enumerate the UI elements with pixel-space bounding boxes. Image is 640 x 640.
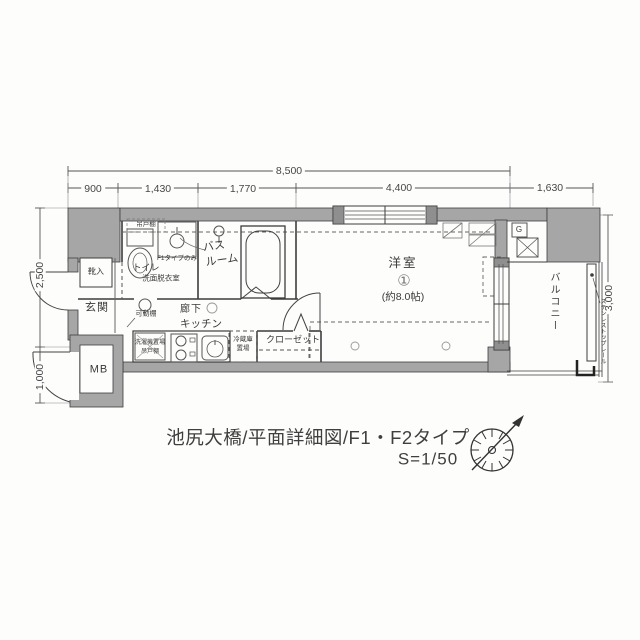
balcony-rail	[587, 264, 596, 361]
washbasin	[158, 222, 196, 257]
floor-plan-drawing	[0, 0, 640, 640]
dim-right-side: 3,000	[604, 282, 615, 314]
note-stainless-rail: ステンレストップレール	[599, 298, 605, 364]
dim-total-width: 8,500	[273, 166, 305, 177]
room-label-living-size: (約8.0帖)	[382, 292, 425, 303]
room-label-balcony: バルコニー	[548, 272, 558, 332]
room-label-hallway: 廊下	[180, 305, 202, 315]
floor-plan-sheet: 8,500 900 1,430 1,770 4,400 1,630 2,500 …	[0, 0, 640, 640]
washer-pan	[135, 333, 165, 360]
dim-seg3: 1,770	[227, 184, 259, 195]
drawing-title: 池尻大橋/平面詳細図/F1・F2タイプ	[166, 429, 469, 448]
room-mark-living: ①	[397, 274, 410, 289]
room-label-closet: クローゼット	[266, 336, 320, 345]
closet-folding-door	[294, 314, 308, 331]
dim-left-upper: 2,500	[35, 259, 46, 291]
compass-icon	[471, 415, 524, 471]
room-label-washroom: 洗面脱衣室	[142, 274, 180, 282]
note-washer: 洗濯機置場	[135, 340, 165, 346]
drawing-scale: S=1/50	[398, 451, 458, 468]
mb-door-gap	[66, 352, 79, 400]
note-hanging-shelf: 吊戸棚	[136, 222, 156, 229]
dim-seg1: 900	[81, 184, 105, 195]
utility-boxes	[443, 223, 496, 246]
note-movable-shelf: 可動棚	[136, 311, 157, 318]
note-fridge-1: 冷蔵庫	[233, 337, 253, 344]
room-label-living: 洋室	[388, 257, 417, 270]
bathtub	[241, 226, 285, 298]
dim-seg2: 1,430	[142, 184, 174, 195]
room-label-entrance: 玄関	[85, 303, 109, 314]
note-f1-only: F1タイプのみ	[157, 256, 197, 263]
dim-seg4: 4,400	[383, 183, 415, 194]
movable-shelf-leader	[127, 318, 135, 327]
stove	[171, 334, 197, 362]
dim-left-lower: 1,000	[35, 361, 46, 393]
room-label-shoe-box: 靴入	[88, 268, 104, 276]
top-window	[333, 206, 437, 224]
room-label-meter-box: MB	[90, 365, 109, 376]
room-label-kitchen: キッチン	[180, 319, 222, 330]
note-fridge-2: 置場	[237, 346, 250, 353]
balcony-sliding-door	[494, 258, 509, 350]
dim-seg5: 1,630	[534, 183, 566, 194]
balcony-step-mark	[577, 360, 594, 375]
kitchen-sink	[202, 336, 228, 360]
note-gas-meter: G	[516, 226, 522, 234]
room-label-toilet: トイレ	[132, 264, 159, 273]
washroom-door-knob	[139, 299, 151, 311]
note-washer-shelf: 吊戸棚	[141, 349, 159, 355]
